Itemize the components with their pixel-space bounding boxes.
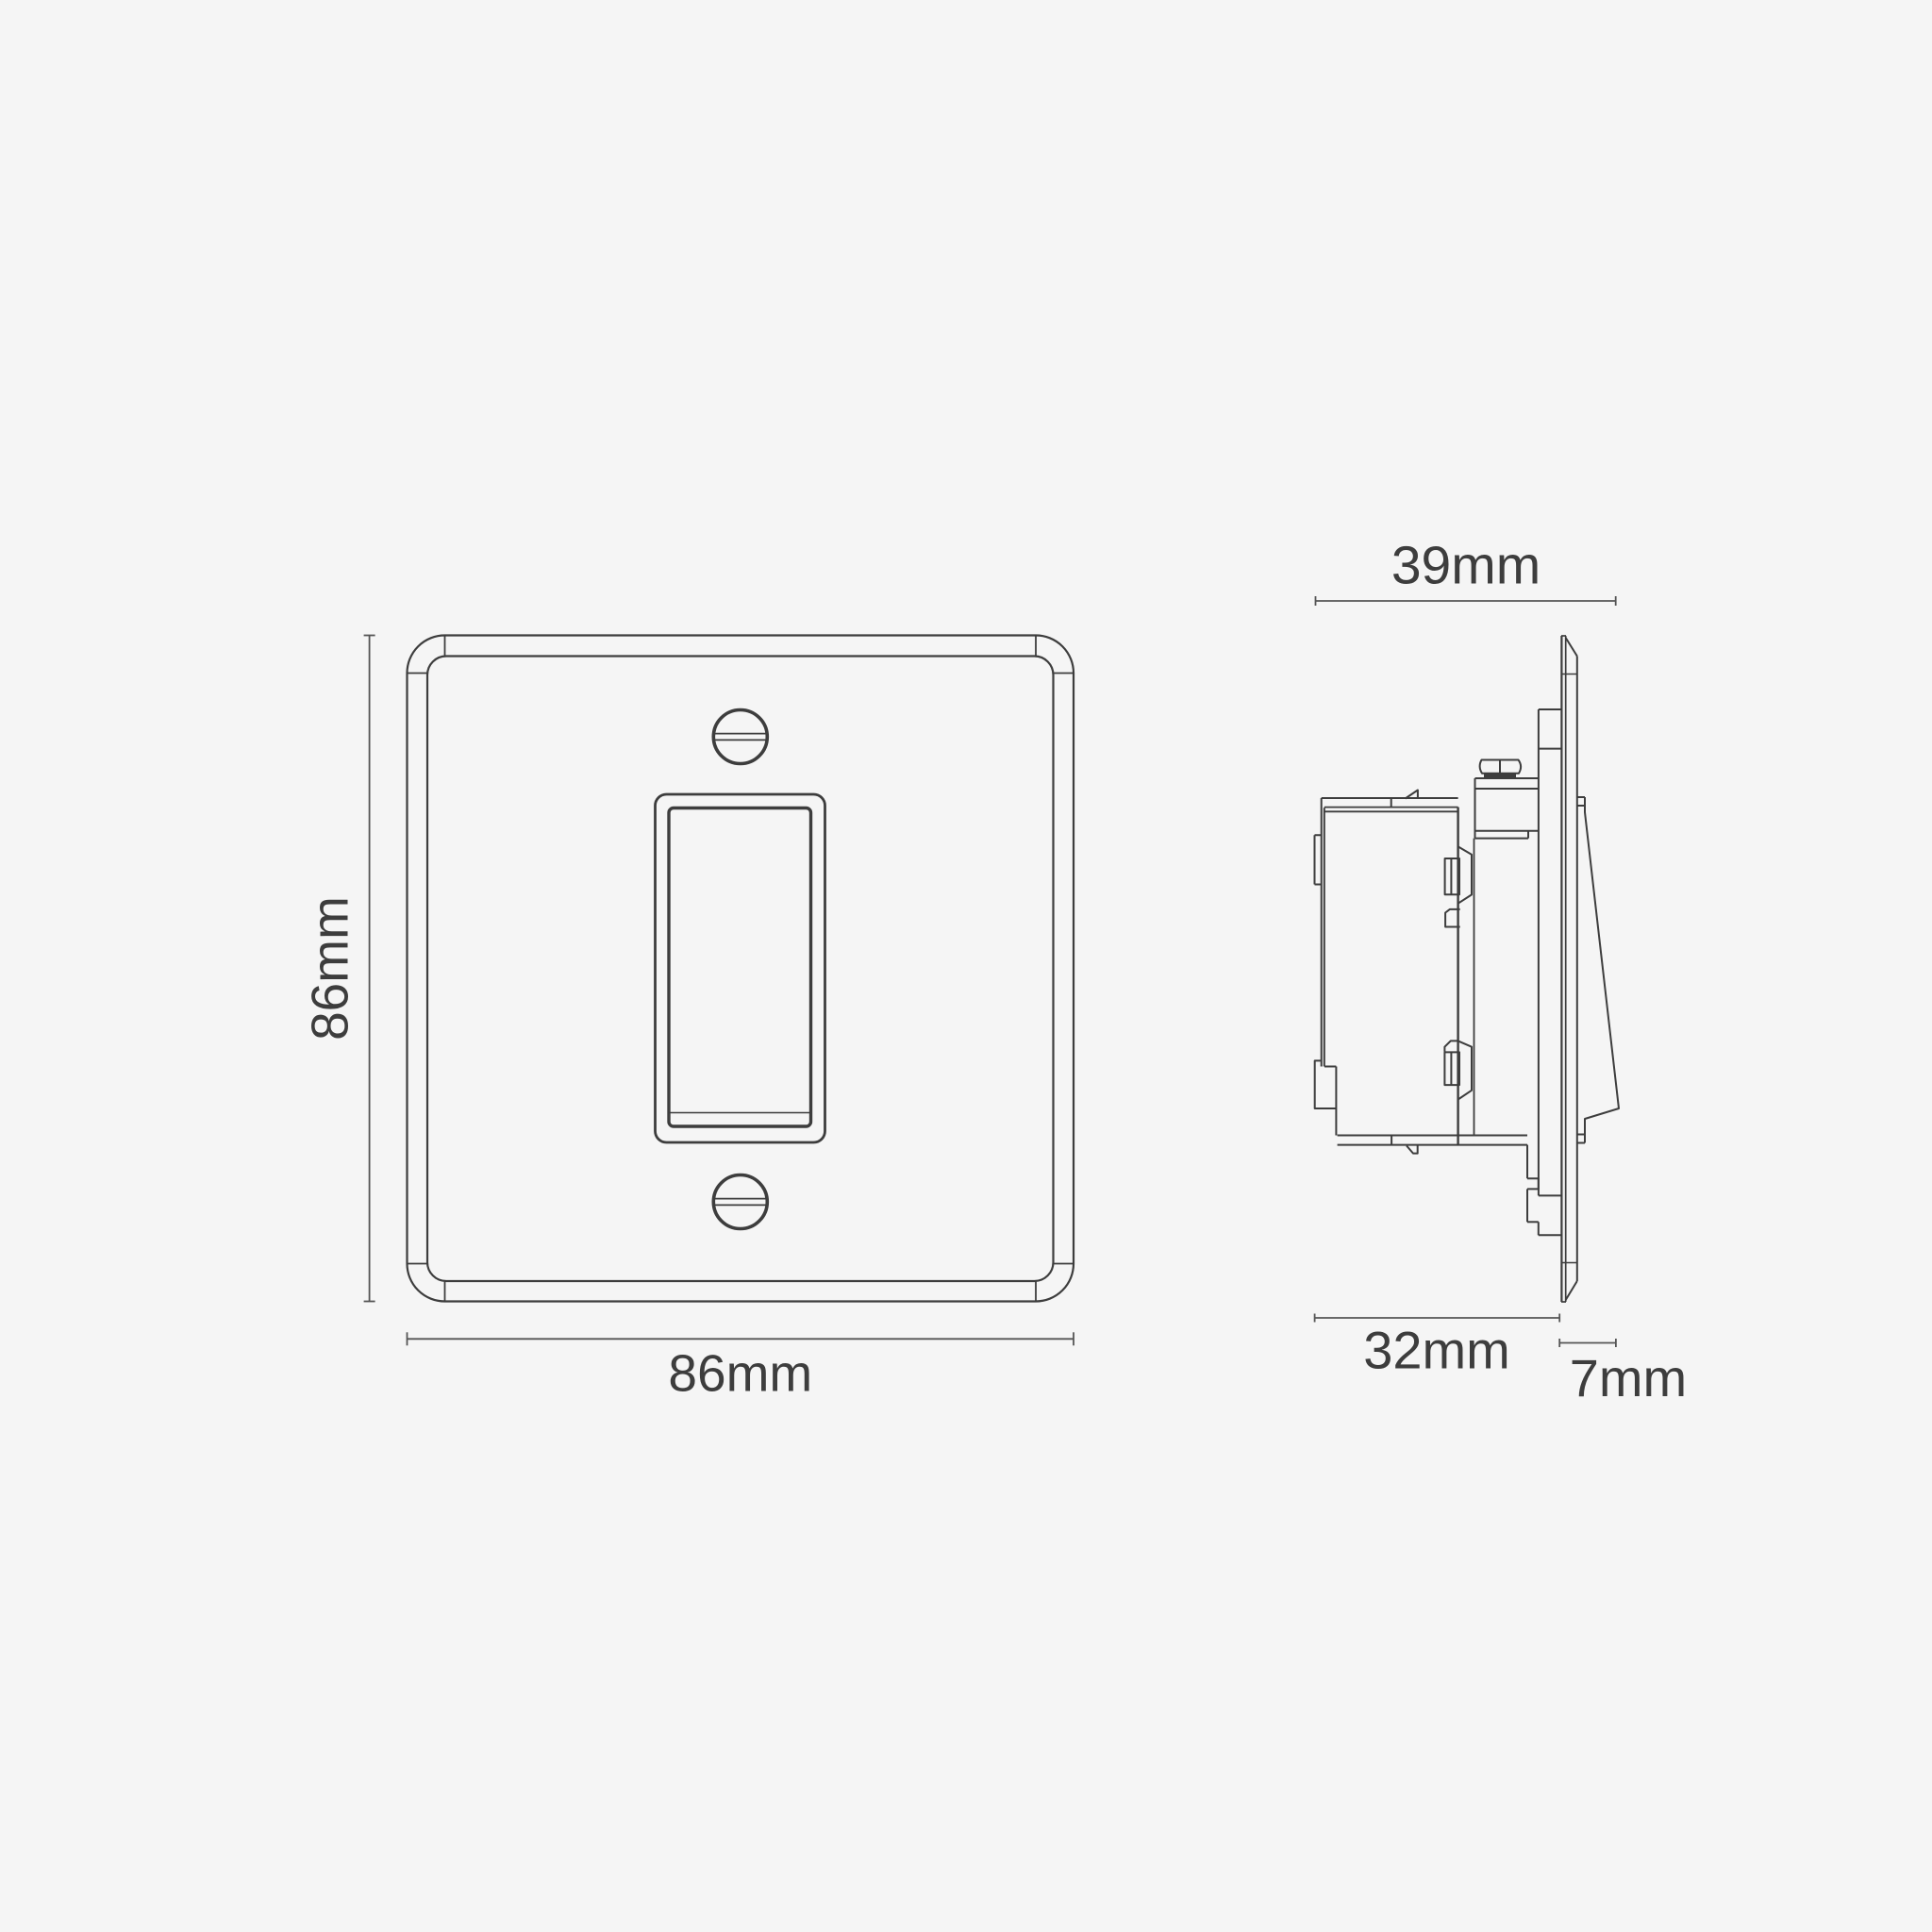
svg-text:39mm: 39mm xyxy=(1391,536,1541,596)
svg-text:86mm: 86mm xyxy=(668,1344,812,1403)
svg-text:86mm: 86mm xyxy=(301,896,359,1041)
svg-text:7mm: 7mm xyxy=(1570,1348,1687,1407)
svg-text:32mm: 32mm xyxy=(1363,1321,1510,1380)
